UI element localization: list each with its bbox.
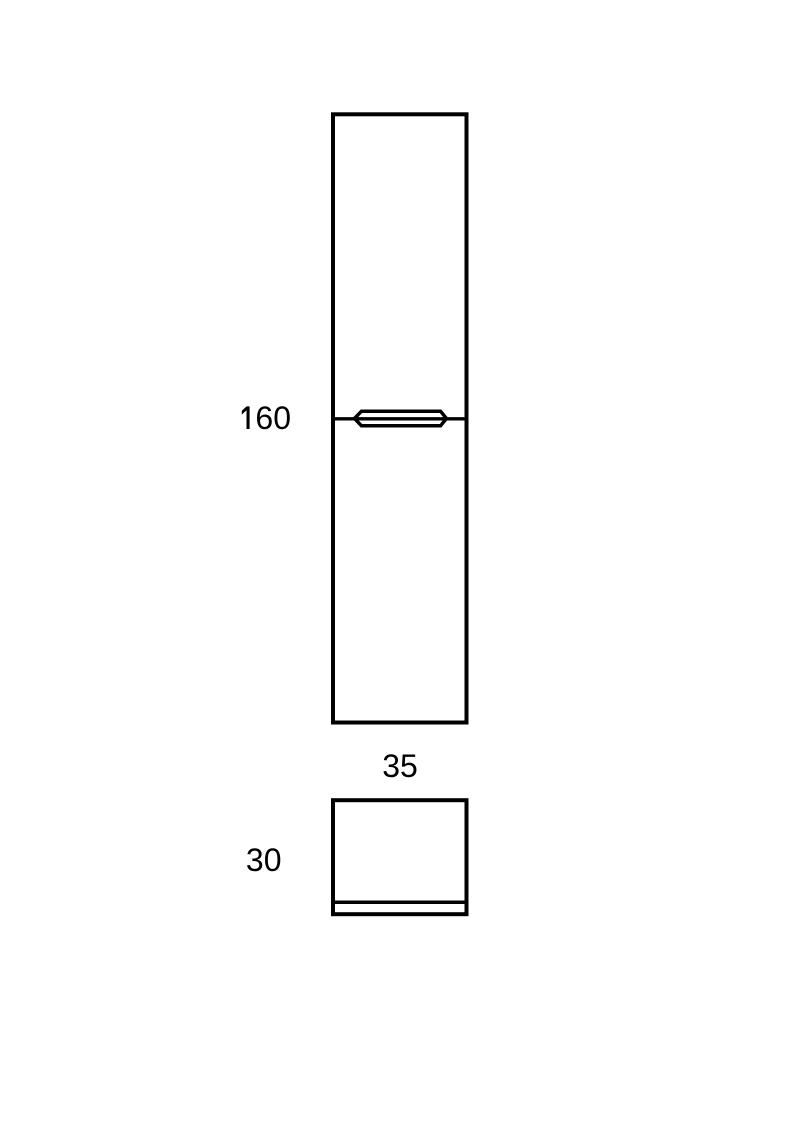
svg-text:60: 60 (255, 400, 291, 436)
svg-text:35: 35 (382, 748, 418, 784)
svg-text:30: 30 (246, 842, 282, 878)
